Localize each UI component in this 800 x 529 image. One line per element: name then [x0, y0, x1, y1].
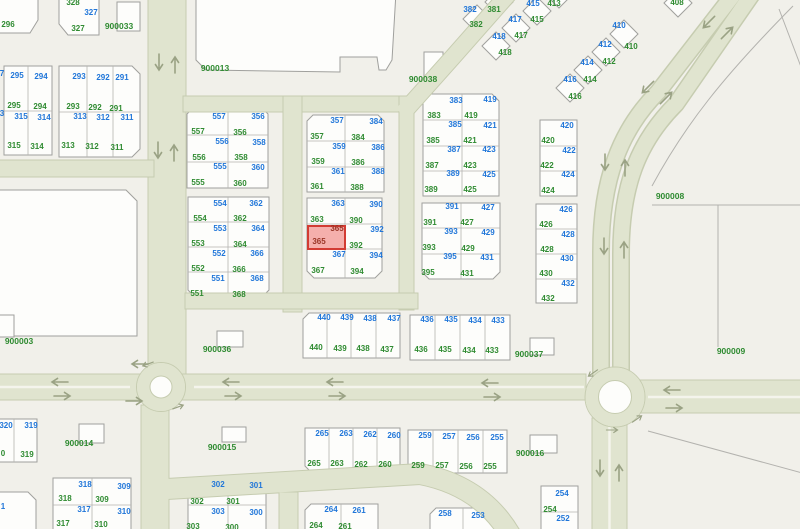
parcel-label-259[interactable]: 259 [418, 432, 431, 440]
parcel-label-437[interactable]: 437 [380, 346, 393, 354]
parcel-label-303[interactable]: 303 [186, 523, 199, 529]
parcel-label-294[interactable]: 294 [34, 73, 47, 81]
parcel-label-438[interactable]: 438 [363, 315, 376, 323]
parcel-label-415[interactable]: 415 [530, 16, 543, 24]
parcel-label-556[interactable]: 556 [192, 154, 205, 162]
parcel-label-368[interactable]: 368 [232, 291, 245, 299]
parcel-label-363[interactable]: 363 [331, 200, 344, 208]
parcel-label-295[interactable]: 295 [7, 102, 20, 110]
parcel-labels-layer: 2963283273279000337329529429529431531431… [0, 0, 800, 529]
parcel-label-256[interactable]: 256 [459, 463, 472, 471]
block-label-900015: 900015 [208, 443, 236, 452]
parcel-label-410[interactable]: 410 [612, 22, 625, 30]
parcel-label-360[interactable]: 360 [233, 180, 246, 188]
parcel-label-423[interactable]: 423 [482, 146, 495, 154]
block-label-900014: 900014 [65, 439, 93, 448]
parcel-label-389[interactable]: 389 [446, 170, 459, 178]
parcel-label-555[interactable]: 555 [191, 179, 204, 187]
parcel-label-388[interactable]: 388 [350, 184, 363, 192]
parcel-label-390[interactable]: 390 [349, 217, 362, 225]
block-label-900008: 900008 [656, 192, 684, 201]
parcel-label-255[interactable]: 255 [483, 463, 496, 471]
parcel-label-393[interactable]: 393 [444, 228, 457, 236]
block-label-900033: 900033 [105, 22, 133, 31]
parcel-label-367[interactable]: 367 [311, 267, 324, 275]
parcel-label-395[interactable]: 395 [421, 269, 434, 277]
parcel-label-314[interactable]: 314 [30, 143, 43, 151]
parcel-label-291[interactable]: 291 [109, 105, 122, 113]
parcel-label-3[interactable]: 3 [0, 110, 4, 118]
parcel-label-425[interactable]: 425 [463, 186, 476, 194]
parcel-label-383[interactable]: 383 [427, 112, 440, 120]
parcel-label-426[interactable]: 426 [559, 206, 572, 214]
parcel-label-391[interactable]: 391 [445, 203, 458, 211]
parcel-label-313[interactable]: 313 [73, 113, 86, 121]
parcel-label-358[interactable]: 358 [234, 154, 247, 162]
parcel-label-553[interactable]: 553 [213, 225, 226, 233]
parcel-label-555[interactable]: 555 [213, 163, 226, 171]
parcel-label-424[interactable]: 424 [561, 171, 574, 179]
parcel-label-430[interactable]: 430 [560, 255, 573, 263]
parcel-label-421[interactable]: 421 [483, 122, 496, 130]
parcel-label-362[interactable]: 362 [233, 215, 246, 223]
parcel-label-264[interactable]: 264 [324, 506, 337, 514]
parcel-label-300[interactable]: 300 [225, 524, 238, 529]
parcel-label-254[interactable]: 254 [543, 506, 556, 514]
parcel-label-256[interactable]: 256 [466, 434, 479, 442]
parcel-label-436[interactable]: 436 [420, 316, 433, 324]
parcel-label-360[interactable]: 360 [251, 164, 264, 172]
parcel-label-419[interactable]: 419 [483, 96, 496, 104]
parcel-label-394[interactable]: 394 [350, 268, 363, 276]
parcel-label-364[interactable]: 364 [233, 241, 246, 249]
parcel-label-262[interactable]: 262 [354, 461, 367, 469]
parcel-label-265[interactable]: 265 [307, 460, 320, 468]
parcel-label-429[interactable]: 429 [481, 229, 494, 237]
parcel-label-557[interactable]: 557 [191, 128, 204, 136]
parcel-label-311[interactable]: 311 [121, 114, 134, 122]
parcel-label-310[interactable]: 310 [117, 508, 130, 516]
parcel-label-314[interactable]: 314 [37, 114, 50, 122]
parcel-label-387[interactable]: 387 [425, 162, 438, 170]
parcel-label-295[interactable]: 295 [10, 72, 23, 80]
block-label-900013: 900013 [201, 64, 229, 73]
parcel-label-294[interactable]: 294 [33, 103, 46, 111]
parcel-label-302[interactable]: 302 [190, 498, 203, 506]
parcel-label-320[interactable]: 320 [0, 422, 13, 430]
parcel-label-258[interactable]: 258 [438, 510, 451, 518]
parcel-label-257[interactable]: 257 [442, 433, 455, 441]
parcel-label-433[interactable]: 433 [485, 347, 498, 355]
parcel-label-385[interactable]: 385 [448, 121, 461, 129]
block-label-900016: 900016 [516, 449, 544, 458]
parcel-label-311[interactable]: 311 [111, 144, 124, 152]
parcel-label-392[interactable]: 392 [349, 242, 362, 250]
parcel-label-0[interactable]: 0 [1, 450, 5, 458]
parcel-label-296[interactable]: 296 [1, 21, 14, 29]
parcel-label-257[interactable]: 257 [435, 462, 448, 470]
parcel-label-309[interactable]: 309 [117, 483, 130, 491]
parcel-label-317[interactable]: 317 [77, 506, 90, 514]
parcel-label-439[interactable]: 439 [333, 345, 346, 353]
map-canvas[interactable]: 2963283273279000337329529429529431531431… [0, 0, 800, 529]
parcel-label-428[interactable]: 428 [540, 246, 553, 254]
parcel-label-413[interactable]: 413 [547, 0, 560, 8]
parcel-label-386[interactable]: 386 [351, 159, 364, 167]
parcel-label-418[interactable]: 418 [498, 49, 511, 57]
parcel-label-263[interactable]: 263 [330, 460, 343, 468]
parcel-label-315[interactable]: 315 [7, 142, 20, 150]
parcel-label-417[interactable]: 417 [508, 16, 521, 24]
parcel-label-291[interactable]: 291 [115, 74, 128, 82]
parcel-label-424[interactable]: 424 [541, 187, 554, 195]
parcel-label-552[interactable]: 552 [191, 265, 204, 273]
parcel-label-440[interactable]: 440 [309, 344, 322, 352]
parcel-label-428[interactable]: 428 [561, 231, 574, 239]
parcel-label-422[interactable]: 422 [540, 162, 553, 170]
parcel-label-423[interactable]: 423 [463, 162, 476, 170]
parcel-label-254[interactable]: 254 [555, 490, 568, 498]
parcel-label-417[interactable]: 417 [514, 32, 527, 40]
parcel-label-358[interactable]: 358 [252, 139, 265, 147]
parcel-label-394[interactable]: 394 [369, 252, 382, 260]
parcel-label-315[interactable]: 315 [14, 113, 27, 121]
parcel-label-421[interactable]: 421 [463, 137, 476, 145]
block-label-900036: 900036 [203, 345, 231, 354]
parcel-label-328[interactable]: 328 [66, 0, 79, 7]
parcel-label-7[interactable]: 7 [0, 70, 4, 78]
parcel-label-310[interactable]: 310 [94, 521, 107, 529]
parcel-label-382[interactable]: 382 [463, 6, 476, 14]
parcel-label-419[interactable]: 419 [464, 112, 477, 120]
parcel-label-426[interactable]: 426 [539, 221, 552, 229]
parcel-label-357[interactable]: 357 [330, 117, 343, 125]
parcel-label-430[interactable]: 430 [539, 270, 552, 278]
parcel-label-414[interactable]: 414 [580, 59, 593, 67]
parcel-label-293[interactable]: 293 [72, 73, 85, 81]
parcel-label-432[interactable]: 432 [541, 295, 554, 303]
parcel-label-361[interactable]: 361 [310, 183, 323, 191]
parcel-label-393[interactable]: 393 [422, 244, 435, 252]
parcel-label-327[interactable]: 327 [71, 25, 84, 33]
parcel-label-552[interactable]: 552 [212, 250, 225, 258]
parcel-label-319[interactable]: 319 [20, 451, 33, 459]
block-label-900037: 900037 [515, 350, 543, 359]
parcel-label-387[interactable]: 387 [447, 146, 460, 154]
parcel-label-439[interactable]: 439 [340, 314, 353, 322]
parcel-label-302[interactable]: 302 [211, 481, 224, 489]
parcel-label-420[interactable]: 420 [541, 137, 554, 145]
parcel-label-554[interactable]: 554 [213, 200, 226, 208]
parcel-label-434[interactable]: 434 [468, 317, 481, 325]
parcel-label-412[interactable]: 412 [598, 41, 611, 49]
parcel-label-420[interactable]: 420 [560, 122, 573, 130]
parcel-label-365[interactable]: 365 [330, 225, 343, 233]
parcel-label-412[interactable]: 412 [602, 58, 615, 66]
parcel-label-415[interactable]: 415 [526, 0, 539, 8]
parcel-label-422[interactable]: 422 [562, 147, 575, 155]
parcel-label-438[interactable]: 438 [356, 345, 369, 353]
parcel-label-557[interactable]: 557 [212, 113, 225, 121]
parcel-label-292[interactable]: 292 [88, 104, 101, 112]
parcel-label-356[interactable]: 356 [233, 129, 246, 137]
parcel-label-312[interactable]: 312 [85, 143, 98, 151]
parcel-label-392[interactable]: 392 [370, 226, 383, 234]
parcel-label-433[interactable]: 433 [491, 317, 504, 325]
parcel-label-359[interactable]: 359 [311, 158, 324, 166]
parcel-label-265[interactable]: 265 [315, 430, 328, 438]
parcel-label-385[interactable]: 385 [426, 137, 439, 145]
parcel-label-362[interactable]: 362 [249, 200, 262, 208]
parcel-label-259[interactable]: 259 [411, 462, 424, 470]
parcel-label-262[interactable]: 262 [363, 431, 376, 439]
parcel-label-253[interactable]: 253 [471, 512, 484, 520]
parcel-label-367[interactable]: 367 [332, 251, 345, 259]
parcel-label-366[interactable]: 366 [232, 266, 245, 274]
parcel-label-436[interactable]: 436 [414, 346, 427, 354]
parcel-label-434[interactable]: 434 [462, 347, 475, 355]
parcel-label-395[interactable]: 395 [443, 253, 456, 261]
block-label-900003: 900003 [5, 337, 33, 346]
parcel-label-301[interactable]: 301 [249, 482, 262, 490]
parcel-label-382[interactable]: 382 [469, 21, 482, 29]
parcel-label-301[interactable]: 301 [226, 498, 239, 506]
parcel-label-303[interactable]: 303 [211, 508, 224, 516]
parcel-label-408[interactable]: 408 [670, 0, 683, 7]
parcel-label-261[interactable]: 261 [338, 523, 351, 529]
parcel-label-431[interactable]: 431 [480, 254, 493, 262]
parcel-label-414[interactable]: 414 [583, 76, 596, 84]
parcel-label-437[interactable]: 437 [387, 315, 400, 323]
parcel-label-366[interactable]: 366 [250, 250, 263, 258]
parcel-label-435[interactable]: 435 [438, 346, 451, 354]
parcel-label-261[interactable]: 261 [352, 507, 365, 515]
parcel-label-260[interactable]: 260 [378, 461, 391, 469]
parcel-label-363[interactable]: 363 [310, 216, 323, 224]
parcel-label-425[interactable]: 425 [482, 171, 495, 179]
parcel-label-292[interactable]: 292 [96, 74, 109, 82]
parcel-label-361[interactable]: 361 [331, 168, 344, 176]
parcel-label-384[interactable]: 384 [351, 134, 364, 142]
parcel-label-312[interactable]: 312 [96, 114, 109, 122]
parcel-label-389[interactable]: 389 [424, 186, 437, 194]
parcel-label-309[interactable]: 309 [95, 496, 108, 504]
parcel-label-435[interactable]: 435 [444, 316, 457, 324]
parcel-label-364[interactable]: 364 [251, 225, 264, 233]
parcel-label-319[interactable]: 319 [24, 422, 37, 430]
parcel-label-318[interactable]: 318 [58, 495, 71, 503]
parcel-label-359[interactable]: 359 [332, 143, 345, 151]
parcel-label-356[interactable]: 356 [251, 113, 264, 121]
parcel-label-263[interactable]: 263 [339, 430, 352, 438]
parcel-label-556[interactable]: 556 [215, 138, 228, 146]
parcel-label-390[interactable]: 390 [369, 201, 382, 209]
parcel-label-318[interactable]: 318 [78, 481, 91, 489]
block-label-900038: 900038 [409, 75, 437, 84]
parcel-label-252[interactable]: 252 [556, 515, 569, 523]
parcel-label-368[interactable]: 368 [250, 275, 263, 283]
parcel-label-317[interactable]: 317 [56, 520, 69, 528]
parcel-label-1[interactable]: 1 [1, 503, 5, 511]
parcel-label-391[interactable]: 391 [423, 219, 436, 227]
parcel-label-383[interactable]: 383 [449, 97, 462, 105]
parcel-label-429[interactable]: 429 [461, 245, 474, 253]
parcel-label-554[interactable]: 554 [193, 215, 206, 223]
parcel-label-416[interactable]: 416 [568, 93, 581, 101]
parcel-label-357[interactable]: 357 [310, 133, 323, 141]
parcel-label-293[interactable]: 293 [66, 103, 79, 111]
parcel-label-365[interactable]: 365 [312, 238, 325, 246]
parcel-label-327[interactable]: 327 [84, 9, 97, 17]
parcel-label-416[interactable]: 416 [563, 76, 576, 84]
block-label-900009: 900009 [717, 347, 745, 356]
parcel-label-432[interactable]: 432 [561, 280, 574, 288]
parcel-label-551[interactable]: 551 [190, 290, 203, 298]
parcel-label-264[interactable]: 264 [309, 522, 322, 529]
parcel-label-300[interactable]: 300 [249, 509, 262, 517]
parcel-label-418[interactable]: 418 [492, 33, 505, 41]
parcel-label-260[interactable]: 260 [387, 432, 400, 440]
parcel-label-440[interactable]: 440 [317, 314, 330, 322]
parcel-label-381[interactable]: 381 [487, 6, 500, 14]
parcel-label-553[interactable]: 553 [191, 240, 204, 248]
parcel-label-313[interactable]: 313 [61, 142, 74, 150]
parcel-label-431[interactable]: 431 [460, 270, 473, 278]
parcel-label-427[interactable]: 427 [460, 219, 473, 227]
parcel-label-255[interactable]: 255 [490, 434, 503, 442]
parcel-label-388[interactable]: 388 [371, 168, 384, 176]
parcel-label-427[interactable]: 427 [481, 204, 494, 212]
parcel-label-551[interactable]: 551 [211, 275, 224, 283]
parcel-label-386[interactable]: 386 [371, 144, 384, 152]
parcel-label-410[interactable]: 410 [624, 43, 637, 51]
parcel-label-384[interactable]: 384 [369, 118, 382, 126]
